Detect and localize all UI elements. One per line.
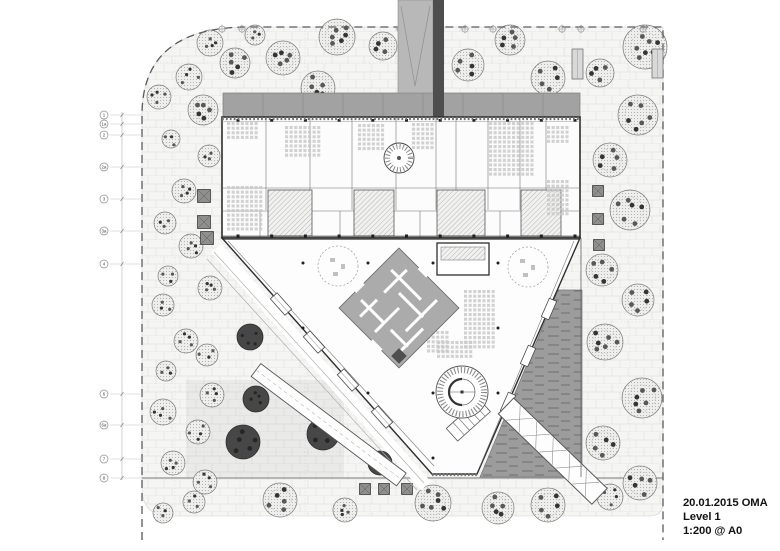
tree (196, 344, 218, 366)
tree (179, 234, 203, 258)
column (338, 235, 341, 238)
grid-bubble-label: 3a (102, 229, 107, 234)
tree (266, 41, 300, 75)
tree (369, 32, 397, 60)
street-kiosk (652, 49, 663, 78)
grid-bubble: 2a (100, 163, 142, 171)
column (237, 235, 240, 238)
grid-bubble-label: 2a (102, 165, 107, 170)
tree (198, 276, 222, 300)
tree (531, 61, 565, 95)
column (432, 262, 435, 265)
tree (186, 420, 210, 444)
title-scale: 1:200 @ A0 (683, 525, 742, 537)
planter (379, 484, 390, 495)
tree (245, 25, 265, 45)
column (574, 235, 577, 238)
tree (586, 59, 614, 87)
column (304, 235, 307, 238)
tree (176, 64, 202, 90)
planter (402, 484, 413, 495)
title-block: 20.01.2015 OMA Level 1 1:200 @ A0 (683, 497, 768, 537)
column (540, 235, 543, 238)
column (367, 262, 370, 265)
service-bridge (433, 0, 444, 117)
tree (243, 386, 269, 412)
title-level: Level 1 (683, 511, 721, 523)
tree (220, 48, 250, 78)
tree (154, 212, 176, 234)
drawing-sheet: 11a22a33a466a78 (0, 0, 780, 551)
column (432, 392, 435, 395)
tree (618, 95, 658, 135)
tree (198, 145, 220, 167)
planter (593, 214, 604, 225)
column (302, 262, 305, 265)
tree (200, 383, 224, 407)
column (270, 235, 273, 238)
column (472, 235, 475, 238)
grid-bubble: 3 (100, 195, 142, 203)
tree (237, 324, 263, 350)
column (497, 392, 500, 395)
planter (360, 484, 371, 495)
tree (156, 361, 176, 381)
tree (150, 399, 176, 425)
tree (333, 498, 357, 522)
grid-bubble: 8 (100, 474, 142, 482)
auditorium-circle (436, 366, 488, 418)
grid-bubble-label: 6a (102, 423, 107, 428)
tree (152, 294, 174, 316)
tree (197, 30, 223, 56)
tree (161, 451, 185, 475)
tree (593, 143, 627, 177)
tree (162, 130, 180, 148)
column (506, 235, 509, 238)
info-kiosk (437, 243, 489, 275)
grid-bubble: 1a (100, 120, 142, 128)
grid-bubble: 1 (100, 111, 142, 119)
column (405, 235, 408, 238)
column (302, 327, 305, 330)
column (371, 235, 374, 238)
grid-bubble: 3a (100, 227, 142, 235)
title-date-author: 20.01.2015 OMA (683, 497, 768, 509)
grid-bubble: 6a (100, 421, 142, 429)
tree (610, 190, 650, 230)
planter (201, 232, 214, 245)
planter (198, 216, 211, 229)
tree (586, 426, 620, 460)
grid-bubble: 6 (100, 390, 142, 398)
spiral-stair (384, 143, 414, 173)
tree (172, 179, 196, 203)
tree (531, 488, 565, 522)
tree (174, 329, 198, 353)
planter (594, 240, 605, 251)
planter (593, 186, 604, 197)
column (367, 392, 370, 395)
tree (153, 503, 173, 523)
site-plan-drawing: 11a22a33a466a78 (0, 0, 780, 551)
tree (147, 85, 171, 109)
tree (263, 483, 297, 517)
tree (623, 466, 657, 500)
canopy-roof (223, 93, 580, 117)
tree (586, 254, 618, 286)
tree (226, 425, 260, 459)
grid-bubble: 7 (100, 455, 142, 463)
grid-bubble: 2 (100, 131, 142, 139)
grid-bubble: 4 (100, 260, 142, 268)
tree (622, 284, 654, 316)
grid-bubble-label: 1a (102, 122, 107, 127)
column (497, 327, 500, 330)
street-kiosk (572, 49, 583, 79)
vehicle-ramp-north (398, 0, 433, 93)
tree (183, 491, 205, 513)
column (439, 235, 442, 238)
tree (452, 49, 484, 81)
tree (415, 485, 451, 521)
tree (319, 19, 355, 55)
tree (193, 470, 217, 494)
column (497, 262, 500, 265)
tree (158, 266, 178, 286)
tree (482, 492, 514, 524)
planter (198, 190, 211, 203)
column (432, 457, 435, 460)
tree (622, 378, 662, 418)
tree (188, 95, 218, 125)
tree (495, 25, 525, 55)
tree (587, 324, 623, 360)
